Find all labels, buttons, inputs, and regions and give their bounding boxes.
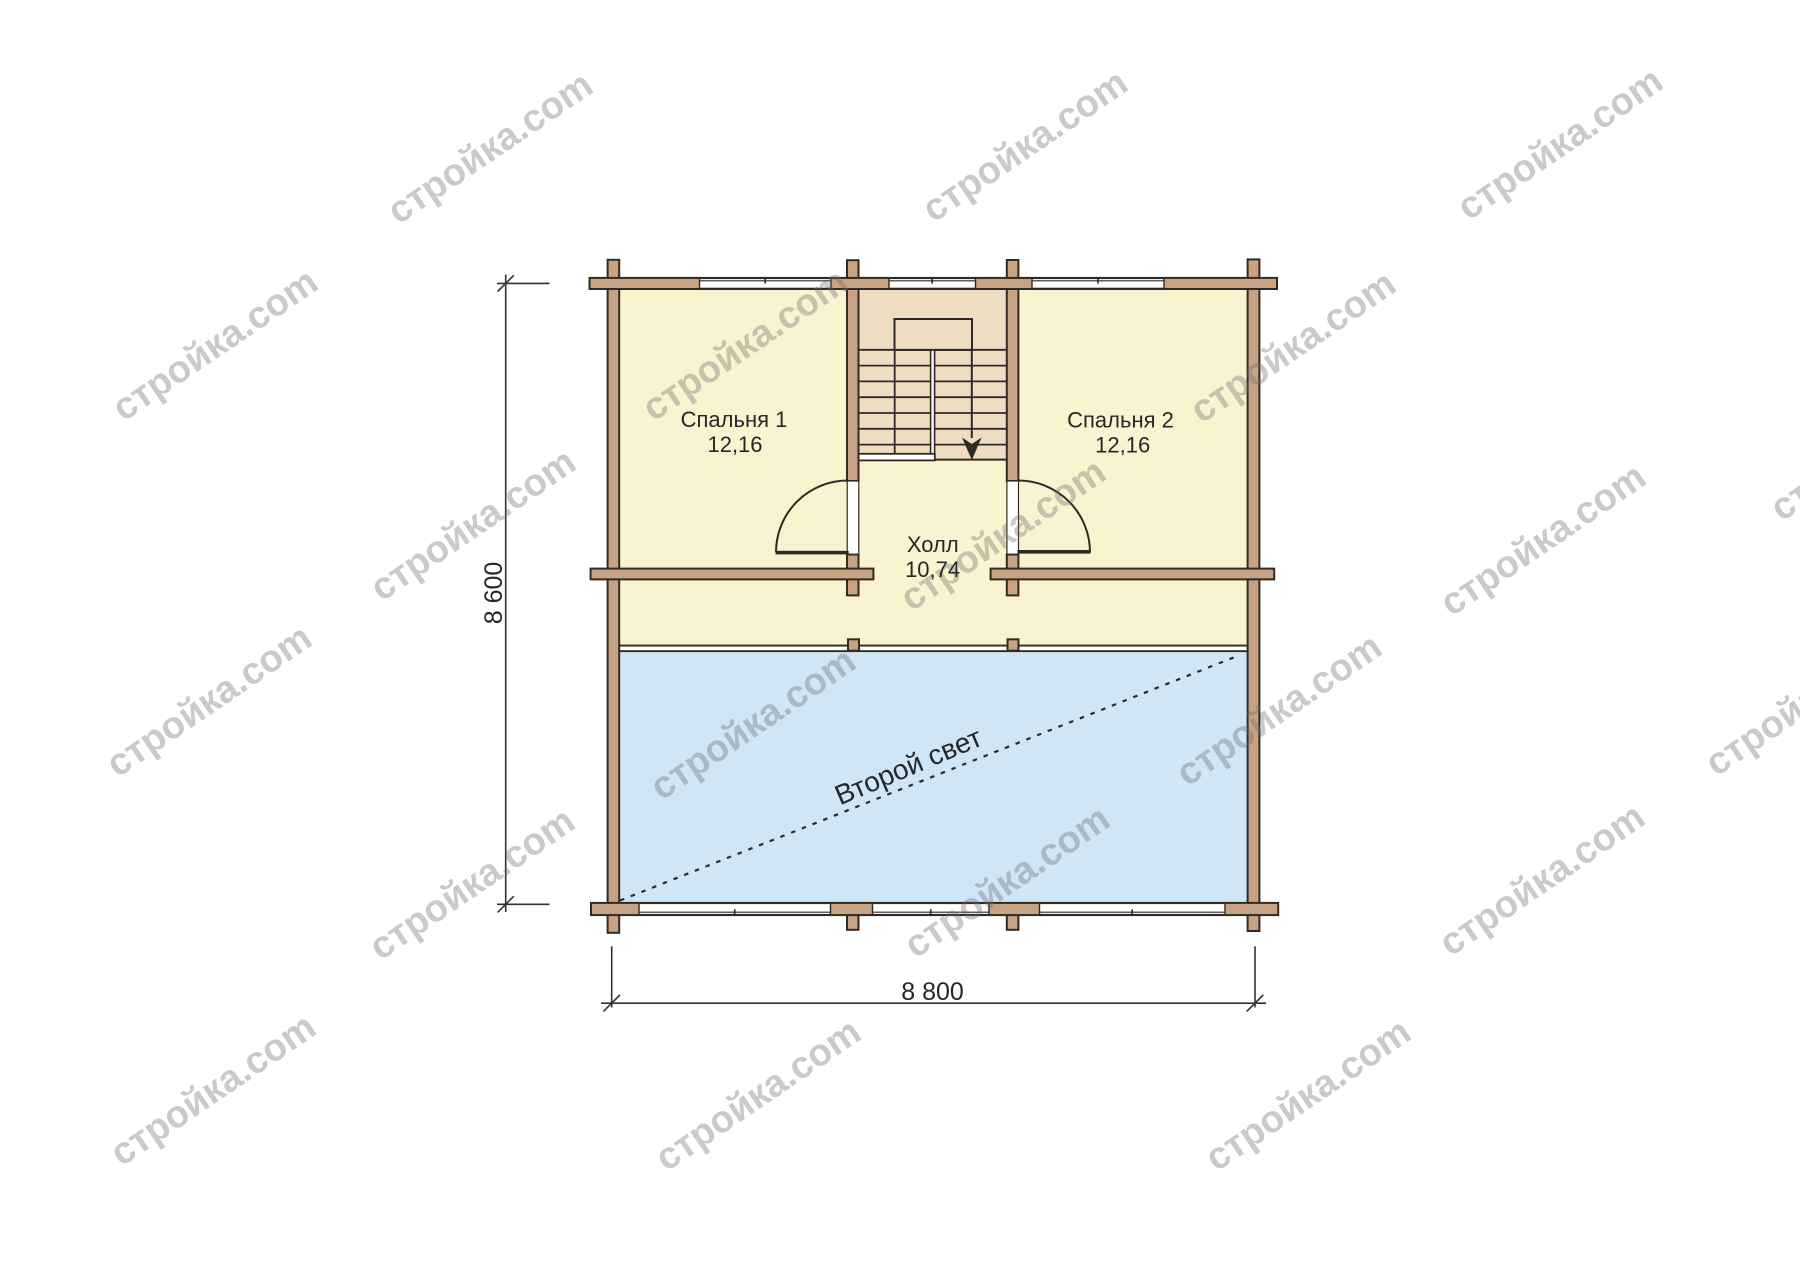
svg-text:Спальня 2: Спальня 2	[1067, 407, 1174, 432]
svg-text:Холл: Холл	[907, 532, 959, 557]
svg-text:10,74: 10,74	[905, 557, 960, 582]
svg-text:12,16: 12,16	[1095, 432, 1150, 457]
svg-text:Спальня 1: Спальня 1	[681, 407, 788, 432]
svg-text:8 600: 8 600	[480, 562, 508, 625]
svg-text:12,16: 12,16	[707, 432, 762, 457]
svg-text:8 800: 8 800	[901, 978, 964, 1006]
